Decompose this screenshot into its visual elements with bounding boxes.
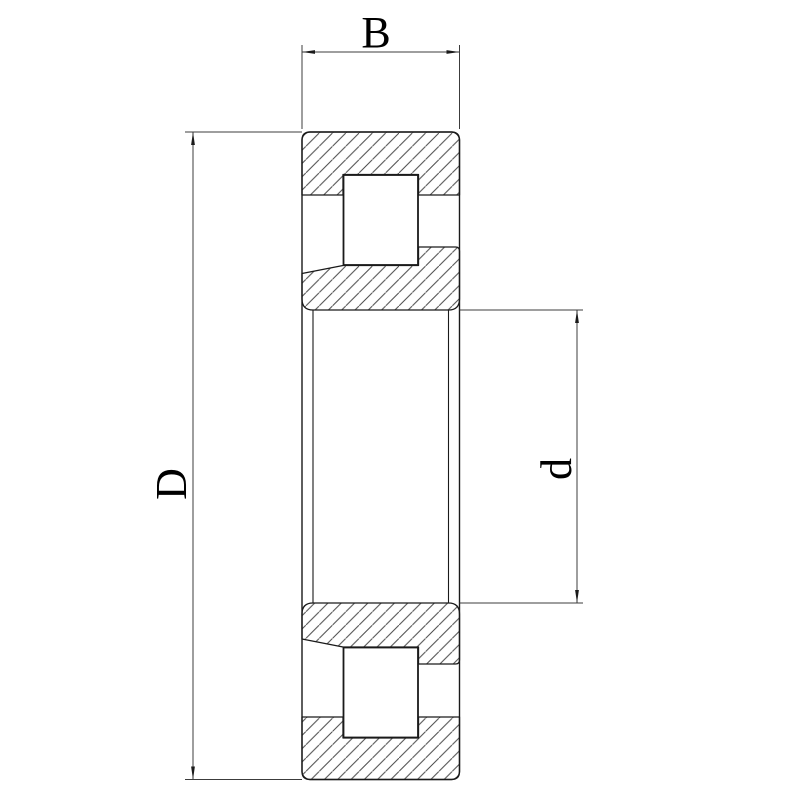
outer-diameter-dimension-label: D — [147, 468, 196, 500]
bearing-drawing-canvas: B D d — [0, 0, 800, 800]
bore-diameter-dimension-label: d — [532, 458, 581, 480]
width-dimension-label: B — [361, 8, 390, 57]
bearing-cross-section-drawing: B D d — [0, 0, 800, 800]
roller-bottom — [344, 648, 419, 738]
roller-top — [344, 175, 419, 265]
